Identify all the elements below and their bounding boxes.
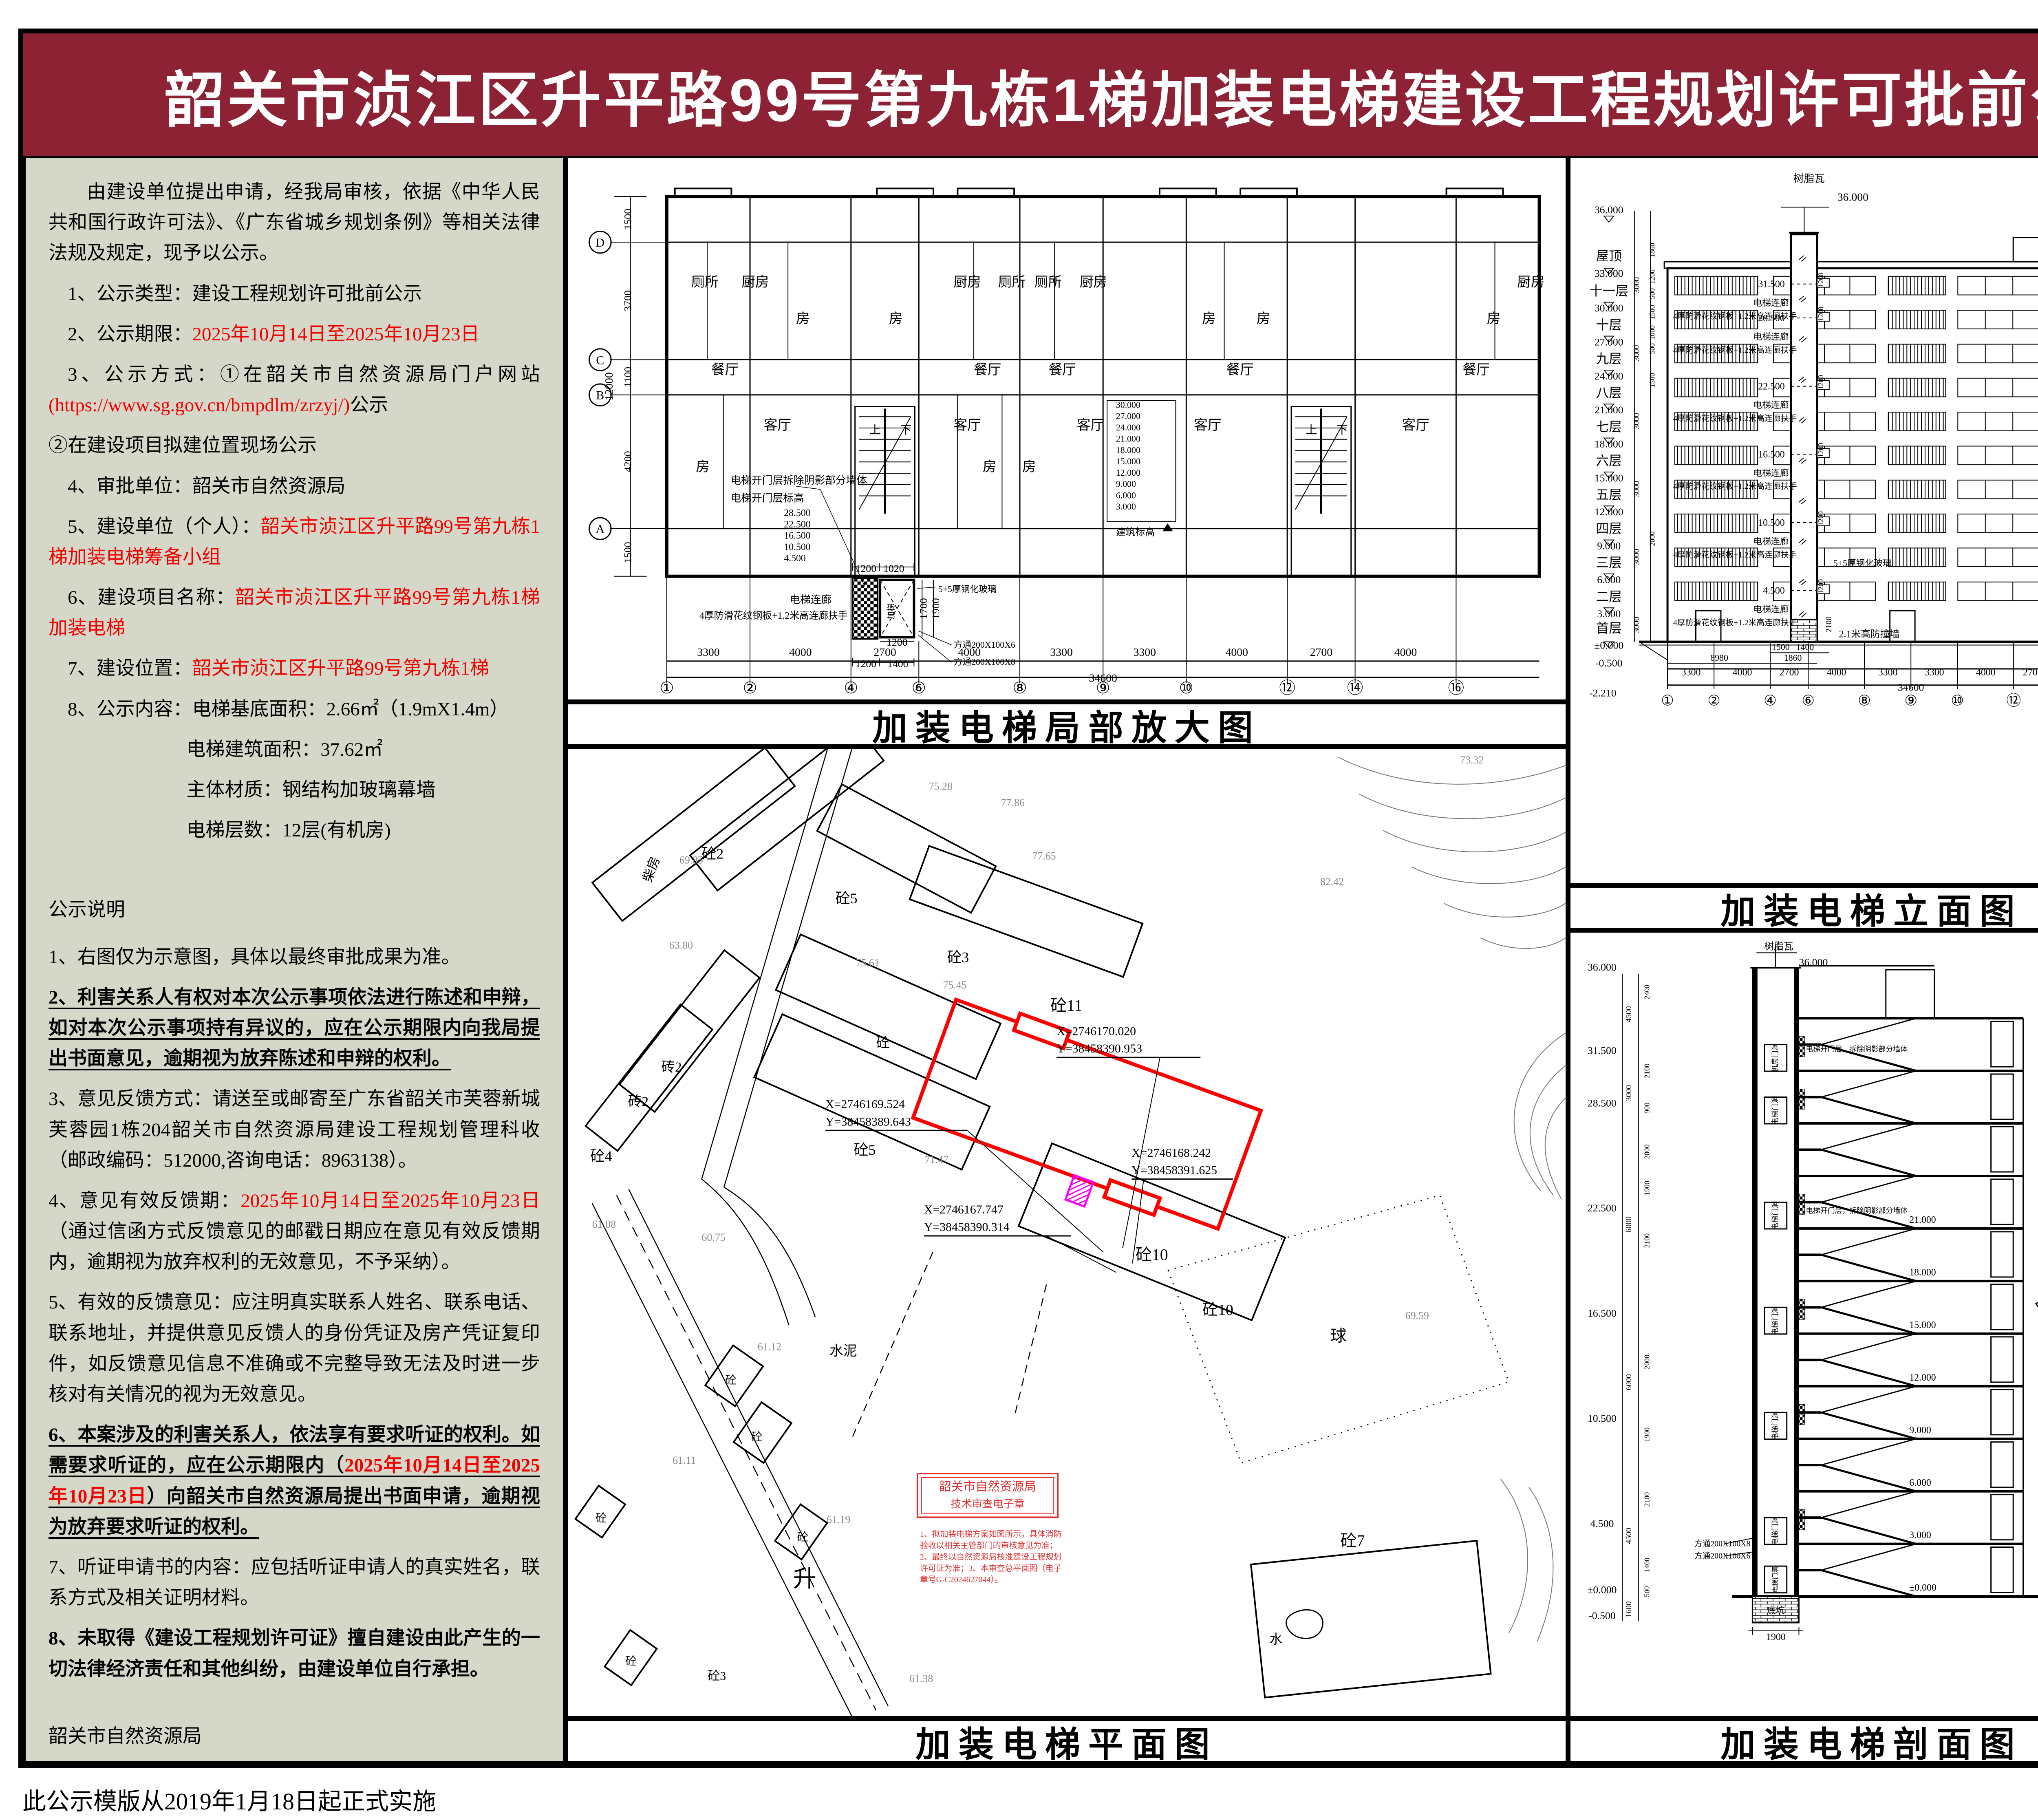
- drawing-label: 27.000: [1595, 336, 1623, 348]
- drawing-label: 升: [793, 1566, 816, 1592]
- drawing-label: 2000: [1643, 1355, 1651, 1369]
- drawing-label: 餐厅: [1048, 362, 1076, 377]
- drawing-label: 方通200X100X6: [1694, 1551, 1751, 1560]
- drawing-label: Y=38458390.953: [1056, 1042, 1142, 1055]
- site-labels: 砼2砼5砼3柴房砖2砖2砼4砼砼5砼11砼10砼10砼7水泥升球水砼砼砼砼砼砼3…: [590, 754, 1484, 1685]
- drawing-label: 77.65: [1032, 850, 1056, 862]
- drawing-label: 三层: [1596, 556, 1621, 570]
- drawing-label: 砼3: [708, 1669, 726, 1683]
- drawing-label: 4200: [622, 451, 634, 472]
- drawing-label: ④: [1764, 692, 1777, 708]
- floor-plan-panel: 厕所厨房房房餐厅客厅房上下客厅餐厅厨房厕所厕所厨房餐厅客厅房房房房餐厅客厅上下客…: [565, 156, 1568, 702]
- notice-item-1: 1、公示类型：建设工程规划许可批前公示: [49, 279, 540, 309]
- drawing-label: 71.47: [925, 1154, 948, 1165]
- drawing-label: 1500: [1648, 373, 1656, 388]
- drawing-label: 4000: [1827, 667, 1846, 678]
- drawing-label: 4厚防滑花纹钢板+1.2米高连廊扶手: [1673, 346, 1797, 355]
- drawing-label: 技术审查电子章: [951, 1498, 1024, 1510]
- drawing-label: 3300: [1925, 667, 1944, 678]
- drawing-label: 6.000: [1597, 574, 1621, 586]
- drawing-label: 12.000: [1595, 506, 1623, 518]
- drawing-label: 砼: [876, 1035, 890, 1050]
- drawing-label: 1900: [1766, 1632, 1786, 1643]
- drawing-label: 1200: [856, 563, 877, 574]
- drawing-label: ⑯: [1448, 679, 1465, 697]
- drawing-label: ⑨: [1096, 679, 1110, 697]
- drawing-label: 4000: [789, 646, 812, 659]
- signature-org: 韶关市自然资源局: [49, 1721, 540, 1752]
- drawing-label: 1200: [1817, 511, 1825, 526]
- drawing-label: 31.500: [1588, 1044, 1617, 1056]
- drawing-label: ④: [844, 679, 858, 697]
- drawing-label: 3000: [1632, 549, 1641, 565]
- note4-label: 4、意见有效反馈期：: [49, 1190, 240, 1211]
- drawing-label: 12000: [603, 372, 615, 400]
- drawing-label: 16.500: [1758, 449, 1784, 460]
- drawing-label: 3300: [697, 646, 719, 659]
- drawing-label: 69.85: [679, 854, 703, 866]
- drawing-label: 21.000: [1595, 404, 1623, 416]
- drawing-label: 砼10: [1136, 1246, 1168, 1264]
- drawing-label: X=2746169.524: [825, 1098, 905, 1111]
- drawing-label: 9.000: [1909, 1425, 1931, 1436]
- notice-sheet: 韶关市浈江区升平路99号第九栋1梯加装电梯建设工程规划许可批前公示之（一） 由建…: [18, 29, 2038, 1768]
- drawing-label: 餐厅: [1462, 362, 1490, 377]
- item5-label: 5、建设单位（个人）：: [68, 516, 260, 537]
- drawing-label: 厨房: [1517, 275, 1544, 290]
- section-caption-text: 加装电梯剖面图: [1720, 1719, 2023, 1763]
- section-drawing: 36.00031.50028.50022.50016.50010.5004.50…: [1570, 933, 2038, 1716]
- drawing-label: 27.000: [1116, 411, 1140, 421]
- drawing-label: 砼7: [1341, 1532, 1365, 1550]
- drawing-label: 2100: [1643, 1063, 1651, 1078]
- drawing-label: 房: [983, 459, 997, 474]
- drawing-label: 75.28: [929, 780, 953, 792]
- drawing-label: 下: [900, 424, 912, 437]
- drawing-label: ⑧: [1858, 692, 1871, 708]
- drawing-label: -2.210: [1589, 687, 1617, 699]
- drawing-label: 2700: [873, 646, 896, 659]
- drawing-label: 电梯开门层标高: [730, 492, 804, 504]
- drawing-label: ②: [743, 679, 757, 697]
- notice-item-8d: 电梯层数：12层(有机房): [49, 815, 540, 846]
- drawing-label: 九层: [1596, 352, 1621, 366]
- drawing-label: 1900: [930, 598, 942, 619]
- drawing-label: 房: [1022, 459, 1036, 474]
- drawing-label: 5+5厚钢化玻璃: [1833, 558, 1892, 568]
- notice-item-8c: 主体材质：钢结构加玻璃幕墙: [49, 775, 540, 805]
- drawing-label: 厨房: [741, 275, 769, 290]
- drawing-label: 3000: [1632, 481, 1641, 497]
- drawing-label: 1200: [1817, 307, 1825, 321]
- drawing-label: 六层: [1596, 454, 1621, 468]
- drawing-label: 1400: [1643, 1557, 1651, 1572]
- drawing-label: 22.500: [784, 519, 810, 530]
- drawing-label: 球: [1330, 1327, 1347, 1345]
- item7-value: 韶关市浈江区升平路99号第九栋1梯: [192, 658, 490, 679]
- floor-plan-caption: 加装电梯局部放大图: [565, 702, 1568, 747]
- drawing-label: D: [596, 236, 604, 249]
- drawing-label: 房: [1257, 311, 1270, 326]
- section-panel: 36.00031.50028.50022.50016.50010.5004.50…: [1568, 930, 2038, 1719]
- drawing-label: ⑭: [1347, 679, 1363, 697]
- drawing-label: X=2746167.747: [924, 1203, 1004, 1216]
- drawing-label: 2100: [1824, 616, 1833, 633]
- drawing-label: 4.500: [1763, 586, 1785, 596]
- drawing-label: 3300: [1878, 667, 1898, 678]
- drawing-label: 十一层: [1590, 284, 1628, 298]
- drawing-label: Y=38458390.314: [924, 1220, 1010, 1234]
- drawing-label: 4500: [1624, 1528, 1633, 1544]
- drawing-label: 加梯: [887, 603, 896, 620]
- drawing-label: 3300: [1134, 646, 1156, 659]
- drawing-label: 砼2: [702, 846, 724, 862]
- drawing-label: -0.500: [1595, 657, 1623, 669]
- drawing-label: 砼5: [836, 890, 858, 907]
- drawing-label: 9.000: [1116, 479, 1136, 489]
- drawing-label: 砼10: [1202, 1302, 1233, 1319]
- drawing-label: 61.08: [592, 1218, 616, 1230]
- drawing-label: 18.000: [1909, 1267, 1936, 1278]
- drawing-label: 电梯门洞: [1771, 1411, 1779, 1440]
- drawing-label: 12.000: [1909, 1372, 1936, 1383]
- drawing-label: ±0.000: [1587, 1584, 1617, 1596]
- drawing-label: 电梯连廊: [1753, 298, 1789, 308]
- site-subject-building: [825, 991, 1264, 1273]
- drawing-label: ±0.000: [1909, 1583, 1937, 1593]
- drawing-label: 900: [1643, 1103, 1651, 1114]
- drawing-label: 砼: [797, 1531, 808, 1544]
- drawing-label: 2、最终以自然资源局核准建设工程规划: [920, 1553, 1062, 1562]
- drawing-label: 四层: [1596, 522, 1621, 536]
- note-8: 8、未取得《建设工程规划许可证》擅自建设由此产生的一切法律经济责任和其他纠纷，由…: [49, 1623, 540, 1684]
- drawing-label: 餐厅: [1226, 362, 1253, 377]
- notice-item-8: 8、公示内容：电梯基底面积：2.66㎡（1.9mX1.4m）: [49, 694, 540, 725]
- drawing-label: 63.80: [669, 940, 693, 951]
- drawing-label: 底坑: [1767, 1606, 1785, 1615]
- drawing-label: 15.000: [1116, 457, 1140, 466]
- drawing-label: 24.000: [1595, 370, 1623, 382]
- elevation-panel: 36.000屋顶33.000十一层30.000十层27.000九层24.000八…: [1568, 156, 2038, 885]
- planning-permit-notice-poster: { "colors":{"title_bg":"#8e2235","panel_…: [0, 0, 2038, 1819]
- drawing-label: 3000: [1632, 345, 1641, 361]
- note4-suffix: （通过信函方式反馈意见的邮戳日期应在意见有效反馈期内，逾期视为放弃权利的无效意见…: [49, 1221, 540, 1273]
- drawing-label: 砼5: [854, 1142, 876, 1158]
- drawing-label: X=2746170.020: [1056, 1024, 1136, 1038]
- drawing-label: 二层: [1596, 589, 1621, 604]
- drawing-label: 树脂瓦: [1764, 941, 1793, 952]
- item7-label: 7、建设位置：: [68, 658, 192, 679]
- drawing-label: 验收以相关主管部门的审核意见为准；: [920, 1541, 1058, 1550]
- drawing-label: 1860: [1784, 653, 1802, 663]
- drawing-label: 屋顶: [1596, 249, 1621, 263]
- drawing-label: 柴房: [640, 855, 663, 884]
- drawing-label: ①: [659, 679, 674, 697]
- item3-suffix: 公示: [350, 395, 388, 416]
- drawing-label: 3.000: [1909, 1530, 1931, 1541]
- drawing-label: 4000: [1976, 667, 1996, 678]
- drawing-label: 电梯门洞: [1771, 1201, 1779, 1230]
- drawing-label: ⑧: [1012, 679, 1027, 697]
- site-plan-caption-text: 加装电梯平面图: [915, 1719, 1218, 1763]
- drawing-label: 水: [1269, 1632, 1282, 1646]
- drawing-label: 1600: [1624, 1601, 1633, 1617]
- drawing-label: 2000: [1643, 1145, 1651, 1159]
- drawing-label: 21.000: [1116, 434, 1140, 444]
- drawing-label: 34600: [1898, 682, 1924, 693]
- drawing-label: 1、拟加装电梯方案如图所示，具体消防: [920, 1530, 1062, 1539]
- drawing-label: 6.000: [1909, 1478, 1931, 1488]
- drawing-label: 1700: [918, 598, 929, 619]
- drawing-label: 方通200X100X8: [1694, 1540, 1751, 1549]
- drawing-label: 18.000: [1116, 445, 1140, 455]
- drawing-label: 客厅: [954, 417, 981, 433]
- drawing-label: 8980: [1710, 653, 1728, 663]
- drawing-label: 18.000: [1595, 438, 1623, 450]
- page-title: 韶关市浈江区升平路99号第九栋1梯加装电梯建设工程规划许可批前公示之（一）: [164, 51, 2038, 139]
- drawing-label: 69.59: [1405, 1310, 1429, 1321]
- drawing-label: 3000: [1632, 413, 1641, 429]
- drawing-label: 十层: [1596, 318, 1621, 332]
- drawing-label: 61.11: [673, 1454, 696, 1466]
- drawing-label: ①: [1661, 692, 1674, 708]
- drawing-label: 4厚防滑花纹钢板+1.2米高连廊扶手: [1673, 312, 1797, 321]
- drawing-label: 4厚防滑花纹钢板+1.2米高连廊扶手: [1673, 550, 1797, 559]
- note-5: 5、有效的反馈意见：应注明真实联系人姓名、联系电话、联系地址，并提供意见反馈人的…: [49, 1287, 540, 1410]
- drawing-label: 上: [869, 424, 881, 437]
- drawing-label: X=2746168.242: [1131, 1146, 1211, 1160]
- notice-item-6: 6、建设项目名称：韶关市浈江区升平路99号第九栋1梯加装电梯: [49, 582, 540, 644]
- drawing-label: 4000: [958, 646, 980, 659]
- drawing-label: 22.500: [1588, 1202, 1617, 1214]
- notice-item-7: 7、建设位置：韶关市浈江区升平路99号第九栋1梯: [49, 653, 540, 684]
- drawing-label: -0.500: [1588, 1610, 1616, 1621]
- drawing-label: 4500: [1624, 1006, 1633, 1022]
- section-shaft: [1724, 946, 1804, 1635]
- drawing-label: 2700: [1780, 667, 1799, 678]
- drawing-label: C: [596, 354, 604, 367]
- drawing-label: 1900: [1643, 1181, 1651, 1196]
- drawing-label: 36.000: [1588, 961, 1617, 973]
- drawing-label: 电梯连廊: [1753, 537, 1789, 547]
- drawing-label: 电梯连廊: [1753, 400, 1789, 410]
- elevation-drawing: 36.000屋顶33.000十一层30.000十层27.000九层24.000八…: [1570, 158, 2038, 883]
- note-2: 2、利害关系人有权对本次公示事项依法进行陈述和申辩，如对本次公示事项持有异议的，…: [49, 982, 540, 1074]
- drawing-label: 砼: [725, 1374, 737, 1387]
- drawing-label: 电梯门洞: [1772, 1566, 1779, 1592]
- notice-item-4: 4、审批单位：韶关市自然资源局: [49, 471, 540, 502]
- drawing-label: 1200: [1817, 579, 1825, 594]
- drawing-label: Y=38458391.625: [1131, 1164, 1217, 1177]
- drawing-label: 500: [1648, 288, 1656, 299]
- drawing-label: 3.000: [1116, 502, 1136, 512]
- drawing-label: 31.500: [1758, 279, 1784, 290]
- drawing-label: 33.000: [1595, 267, 1623, 279]
- notice-intro: 由建设单位提出申请，经我局审核，依据《中华人民共和国行政许可法》、《广东省城乡规…: [49, 177, 540, 269]
- item2-dates: 2025年10月14日至2025年10月23日: [192, 324, 480, 345]
- notice-item-2: 2、公示期限：2025年10月14日至2025年10月23日: [49, 319, 540, 350]
- drawing-label: 75.61: [856, 957, 880, 968]
- drawing-label: 60.75: [702, 1231, 726, 1243]
- drawing-label: 1100: [622, 367, 634, 388]
- public-notice-text-panel: 由建设单位提出申请，经我局审核，依据《中华人民共和国行政许可法》、《广东省城乡规…: [23, 156, 565, 1763]
- drawing-label: 1500: [622, 209, 634, 230]
- drawing-label: 电梯门洞: [1771, 1306, 1779, 1335]
- drawing-label: ⑫: [1279, 679, 1295, 697]
- drawing-label: 许可证为准；3、本审查总平面图（电子: [920, 1564, 1062, 1573]
- drawing-label: 1500: [1648, 305, 1656, 320]
- drawing-label: 电梯连廊: [1753, 332, 1789, 342]
- drawing-label: 1020: [883, 563, 904, 574]
- drawing-label: 6000: [1624, 1216, 1633, 1233]
- drawing-label: 4厚防滑花纹钢板+1.2米高连廊扶手: [1673, 414, 1797, 423]
- notice-item-8b: 电梯建筑面积：37.62㎡: [49, 735, 540, 765]
- drawing-label: 5+5厚钢化玻璃: [938, 584, 997, 594]
- drawing-label: 电梯开门层，拆除阴影部分墙体: [1806, 1207, 1908, 1215]
- drawing-label: 2100: [1643, 1233, 1651, 1248]
- drawing-label: ⑫: [2006, 692, 2021, 708]
- drawing-label: 韶关市自然资源局: [939, 1480, 1037, 1494]
- drawing-label: 3300: [1681, 667, 1701, 678]
- drawing-label: ⑥: [1802, 692, 1815, 708]
- drawing-label: 下: [1337, 424, 1348, 437]
- drawing-label: 16.500: [1588, 1307, 1617, 1319]
- drawing-label: Y=38458389.643: [825, 1115, 911, 1128]
- item3-url: (https://www.sg.gov.cn/bmpdlm/zrzyj/): [49, 395, 350, 416]
- drawing-label: 客厅: [1077, 417, 1104, 433]
- drawing-label: 28.500: [784, 508, 810, 518]
- drawing-label: 36.000: [1799, 956, 1828, 968]
- drawing-label: ⑩: [1951, 692, 1964, 708]
- item3-label: 3、公示方式：①在韶关市自然资源局门户网站: [68, 364, 540, 385]
- drawing-label: 12.000: [1116, 468, 1140, 478]
- drawing-label: 砖2: [628, 1094, 648, 1110]
- drawing-label: 砼11: [1050, 997, 1082, 1015]
- drawing-label: 10.500: [1758, 518, 1784, 528]
- content-area: 由建设单位提出申请，经我局审核，依据《中华人民共和国行政许可法》、《广东省城乡规…: [23, 156, 2038, 1763]
- drawing-label: 10.500: [784, 542, 810, 552]
- drawing-label: 73.32: [1460, 754, 1484, 766]
- note-3: 3、意见反馈方式：请送至或邮寄至广东省韶关市芙蓉新城芙蓉园1栋204韶关市自然资…: [49, 1084, 540, 1176]
- drawing-label: 77.86: [1001, 796, 1025, 808]
- drawing-label: 4000: [1225, 646, 1248, 659]
- drawing-label: 2700: [2023, 667, 2038, 678]
- drawing-label: 4000: [1394, 646, 1417, 659]
- drawing-label: 1400: [887, 658, 909, 670]
- drawing-label: 厨房: [954, 275, 981, 290]
- drawing-label: 电梯开门层，拆除阴影部分墙体: [1806, 1045, 1908, 1053]
- drawing-label: 房: [1202, 311, 1216, 326]
- drawing-label: 6.000: [1116, 490, 1136, 500]
- floor-plan-caption-text: 加装电梯局部放大图: [872, 702, 1261, 747]
- drawing-label: 章号G-C2024627044）。: [920, 1575, 1003, 1584]
- drawing-label: 2100: [1643, 1492, 1651, 1507]
- drawing-label: ⑨: [1904, 692, 1917, 708]
- notice-item-5: 5、建设单位（个人）：韶关市浈江区升平路99号第九栋1梯加装电梯筹备小组: [49, 512, 540, 573]
- drawing-label: 4厚防滑花纹钢板+1.2米高连廊扶手: [1673, 618, 1797, 627]
- elevation-caption-text: 加装电梯立面图: [1720, 885, 2023, 930]
- drawing-label: 1200: [856, 658, 877, 670]
- title-bar: 韶关市浈江区升平路99号第九栋1梯加装电梯建设工程规划许可批前公示之（一）: [23, 33, 2038, 156]
- drawing-label: 3700: [622, 290, 634, 311]
- drawing-label: 4000: [1733, 667, 1752, 678]
- plan-dimension-lines: [667, 576, 1540, 684]
- drawing-label: 4.500: [784, 553, 805, 564]
- drawing-label: 36.000: [1595, 204, 1623, 216]
- drawing-label: 电梯连廊: [1753, 604, 1789, 614]
- drawing-label: 砼: [596, 1511, 607, 1524]
- drawing-label: 22.500: [1758, 382, 1784, 392]
- drawing-label: 10.500: [1588, 1412, 1617, 1424]
- drawing-label: 3300: [1050, 646, 1072, 659]
- drawing-label: 砼: [751, 1430, 763, 1443]
- drawing-label: 36.000: [1837, 191, 1868, 203]
- drawing-label: ⑥: [912, 679, 926, 697]
- drawing-label: 厨房: [1080, 275, 1107, 290]
- drawing-label: 电梯连廊: [790, 594, 832, 606]
- drawing-label: ±0.000: [1594, 639, 1623, 651]
- drawing-label: 八层: [1596, 386, 1621, 400]
- drawing-label: 1200: [1648, 269, 1656, 284]
- drawing-label: 砖2: [661, 1059, 682, 1075]
- drawing-label: 61.12: [758, 1341, 781, 1353]
- drawing-label: 1000: [1648, 325, 1656, 340]
- drawing-label: 电梯连廊: [1753, 468, 1789, 478]
- drawing-label: 75.45: [943, 979, 967, 991]
- notice-item-3: 3、公示方式：①在韶关市自然资源局门户网站(https://www.sg.gov…: [49, 360, 540, 421]
- drawing-label: 500: [1643, 1586, 1651, 1597]
- elevation-facade: [1639, 238, 2038, 660]
- drawing-label: 28.500: [1588, 1097, 1617, 1109]
- drawing-label: 30.000: [1595, 302, 1623, 314]
- drawing-label: 餐厅: [974, 362, 1001, 377]
- drawing-label: 砼3: [947, 949, 969, 965]
- drawing-label: 上: [1306, 424, 1317, 437]
- drawing-label: 1200: [1817, 443, 1825, 457]
- drawing-label: 6000: [1624, 1374, 1633, 1390]
- drawing-label: 砼4: [590, 1148, 612, 1164]
- drawing-label: 客厅: [1402, 417, 1429, 433]
- drawing-label: 2.1米高防撞墙: [1839, 629, 1900, 640]
- drawing-label: 客厅: [1194, 417, 1221, 433]
- floor-plan-drawing: 厕所厨房房房餐厅客厅房上下客厅餐厅厨房厕所厕所厨房餐厅客厅房房房房餐厅客厅上下客…: [568, 158, 1566, 699]
- site-plan-panel: 砼2砼5砼3柴房砖2砖2砼4砼砼5砼11砼10砼10砼7水泥升球水砼砼砼砼砼砼3…: [565, 747, 1568, 1719]
- drawing-label: 2700: [1310, 646, 1332, 659]
- drawing-label: 房: [1487, 311, 1501, 326]
- plan-labels: 厕所厨房房房餐厅客厅房上下客厅餐厅厨房厕所厕所厨房餐厅客厅房房房房餐厅客厅上下客…: [596, 209, 1545, 697]
- note-7: 7、听证申请书的内容：应包括听证申请人的真实姓名，联系方式及相关证明材料。: [49, 1552, 540, 1613]
- drawing-label: 1200: [1817, 273, 1825, 287]
- drawing-label: 电梯门洞: [1771, 1096, 1779, 1125]
- drawing-label: 1200: [1817, 375, 1825, 390]
- drawing-label: 厕所: [998, 275, 1026, 290]
- drawing-label: 3.000: [1597, 608, 1621, 620]
- note-6: 6、本案涉及的利害关系人，依法享有要求听证的权利。如需要求听证的，应在公示期限内…: [49, 1420, 540, 1542]
- drawing-label: 3000: [1624, 1085, 1633, 1101]
- drawing-label: 15.000: [1909, 1320, 1936, 1330]
- notice-item-3b: ②在建设项目拟建位置现场公示: [49, 430, 540, 461]
- drawing-label: 机房门洞: [1771, 1043, 1779, 1072]
- item6-label: 6、建设项目名称：: [68, 587, 235, 608]
- drawing-label: 2400: [1643, 985, 1651, 999]
- drawing-label: 61.19: [827, 1513, 850, 1525]
- drawing-label: 1400: [1796, 642, 1814, 652]
- drawing-label: ②: [1707, 692, 1720, 708]
- drawing-label: A: [596, 523, 605, 536]
- item2-label: 2、公示期限：: [68, 324, 192, 345]
- drawing-label: 9.000: [1597, 540, 1621, 552]
- plan-structure: [589, 188, 1540, 576]
